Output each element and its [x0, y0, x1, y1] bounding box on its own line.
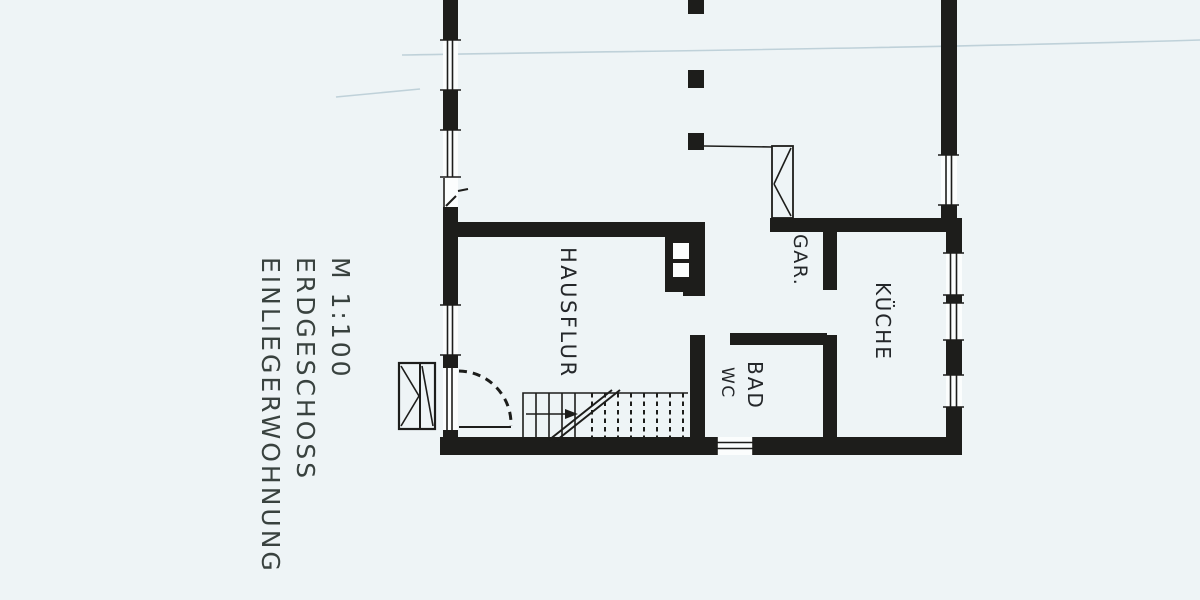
pillar [688, 133, 704, 150]
floor-plan: HAUSFLUR GAR. KÜCHE BAD WC M 1:100 ERDGE… [0, 0, 1200, 600]
interior-wall-kitchen-top [770, 218, 962, 232]
room-label-gar: GAR. [789, 234, 811, 286]
window-left-2 [440, 130, 461, 177]
plan-scale: M 1:100 [326, 257, 355, 380]
plan-apartment-type: EINLIEGERWOHNUNG [256, 257, 285, 574]
scanned-floor-plan-page: HAUSFLUR GAR. KÜCHE BAD WC M 1:100 ERDGE… [0, 0, 1200, 600]
window-left-3 [440, 305, 461, 355]
window-right-upper [938, 155, 959, 205]
pillar [688, 0, 704, 14]
bath-wall-left [690, 335, 705, 437]
exterior-wall-bottom [440, 437, 962, 455]
room-label-kueche: KÜCHE [871, 282, 895, 361]
window-kitchen-3 [943, 375, 964, 407]
pillar [688, 70, 704, 88]
room-label-wc: WC [717, 367, 737, 399]
bottom-wall-door [717, 437, 753, 455]
chimney-block [665, 237, 705, 296]
interior-wall-hall-top [443, 222, 705, 237]
bath-wall-top [730, 333, 827, 345]
room-label-bad: BAD [743, 361, 767, 410]
plan-floor-name: ERDGESCHOSS [291, 257, 320, 481]
paper-background [0, 0, 1200, 600]
window-kitchen-1 [943, 253, 964, 295]
window-kitchen-2 [943, 303, 964, 340]
window-left-1 [440, 40, 461, 90]
room-label-hausflur: HAUSFLUR [556, 247, 580, 379]
